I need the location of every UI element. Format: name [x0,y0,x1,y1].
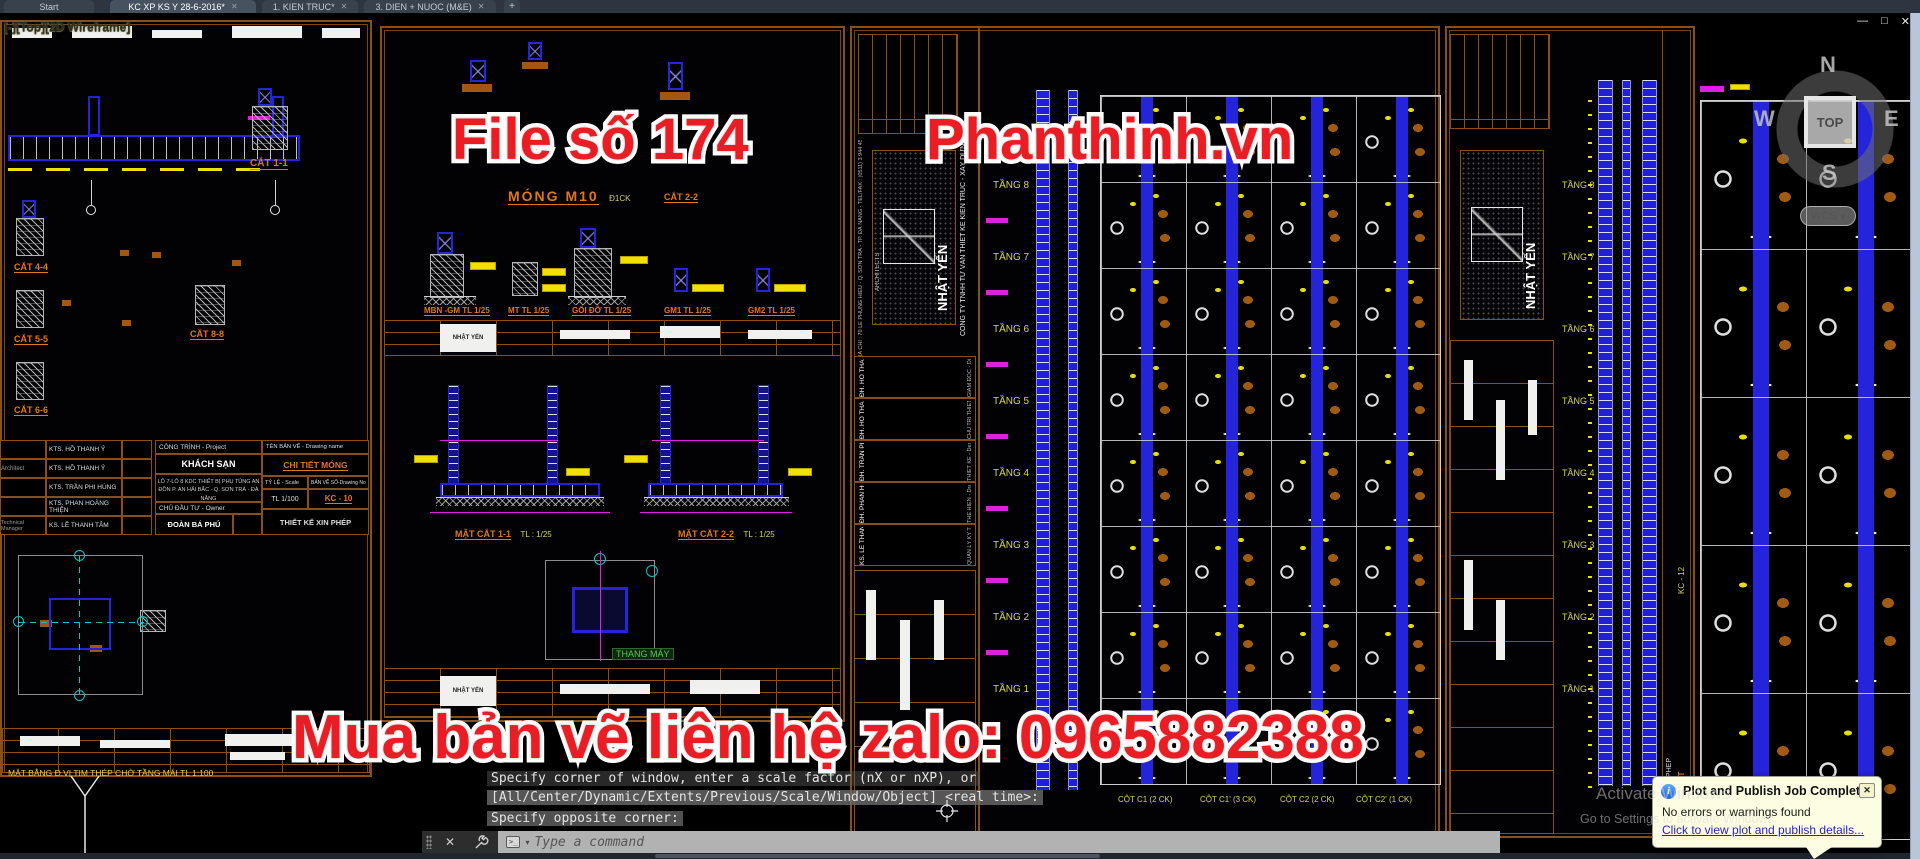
brick-detail [574,248,612,298]
role-row: QUẢN LÝ KỸ THUẬT - Technical Manager KS.… [854,524,976,566]
title-block: CÔNG TRÌNH - Project KHÁCH SẠN LÔ 7-LÔ 8… [155,440,369,535]
viewcube-top-face[interactable]: TOP [1804,96,1856,148]
dimension-line [652,440,764,441]
grid-bubble [74,690,85,701]
person-name: KTS. HỒ THANH Ỷ [46,459,122,478]
role-row: THỂ HIỆN - Drawn by ĐH. PHAN HOÀNG THIỆN [854,482,976,524]
wall-section [660,385,671,484]
viewport-controls-label[interactable]: [-][Top][2D Wireframe] [4,20,130,34]
column-elevation [1642,80,1657,786]
drawing-tab-bar: Start KC XP KS Y 28-6-2016* ✕ 1. KIEN TR… [0,0,1920,13]
wall-section [547,385,558,484]
drawing-info-strip: THIẾT KẾ XIN PHÉP CHI TIẾT CỘT KC - 12 [1662,30,1693,834]
detail-label: GỐI ĐỠ TL 1/25 [572,306,631,316]
person-name: KS. LÊ THANH TÂM [46,516,122,535]
chevron-down-icon: ▾ [1841,212,1845,221]
tab-drawing-kcxp[interactable]: KC XP KS Y 28-6-2016* ✕ [110,0,256,13]
center-mark-cursor [936,800,958,822]
tab-label: KC XP KS Y 28-6-2016* [128,2,225,12]
drawing-name-label: TÊN BẢN VẼ - Drawing name [262,440,369,454]
redacted-text-block [866,590,876,660]
column-type-label: CỘT C2 (2 CK) [1280,795,1335,804]
tab-close-icon[interactable]: ✕ [341,2,348,11]
vertical-scrollbar[interactable] [1910,13,1920,859]
floor-label: TẦNG 7 [993,252,1029,263]
chevron-down-icon[interactable]: ▾ [525,838,529,847]
grid-bubble [74,550,85,561]
highlight-bar [774,284,806,292]
plot-notification-balloon: i Plot and Publish Job Complete ✕ No err… [1652,776,1882,848]
plan-drawing [18,555,143,695]
hatch-chip [122,320,131,326]
signature-cell [122,497,152,516]
firm-stamp: NHẬT YẾN ARCHITECTS [872,150,956,325]
project-name: KHÁCH SẠN [155,454,262,474]
highlight-bar [566,468,590,476]
personnel-table: KTS. HỒ THANH Ỷ Architect KTS. HỒ THANH … [0,440,152,535]
command-close-button[interactable]: ✕ [436,831,464,853]
close-icon: ✕ [445,835,455,849]
drawing-name-text: CHI TIẾT MÓNG [283,460,347,471]
detail-label: CẮT 8-8 [190,329,224,340]
dimension-line [430,512,610,513]
brick-detail [16,218,44,256]
plan-inner-rect [49,598,111,650]
sheet-title-suffix: Đ1CK [609,194,630,203]
owner-label: CHỦ ĐẦU TƯ - Owner [155,502,262,514]
horizontal-scrollbar[interactable] [655,854,1100,858]
highlight-bar [692,284,724,292]
section-scale: TL : 1/25 [520,530,551,539]
column-x-section [668,62,683,90]
elevator-plan [545,560,655,660]
role-name: ĐH. PHAN HOÀNG THIỆN [859,485,866,523]
role-name: ĐH. HỒ THANH Ỷ [859,401,866,439]
tab-label: 3. DIEN + NUOC (M&E) [376,2,472,12]
redacted-text-block [230,752,285,760]
role-title: GIÁM ĐỐC - Director [967,359,973,397]
tab-drawing-diennuoc[interactable]: 3. DIEN + NUOC (M&E) ✕ [364,0,496,13]
hatch-chip [232,260,241,266]
firm-logo-box: NHẬT YẾN [440,324,496,352]
drawing-number-text: KC - 10 [325,494,353,504]
signature-cell [122,459,152,478]
column-x-section [470,60,486,82]
command-history-line: [All/Center/Dynamic/Extents/Previous/Sca… [487,790,1043,805]
brick-detail [195,285,225,325]
hatch-chip [522,62,548,69]
close-icon: ✕ [1863,785,1871,796]
redacted-text-block [560,330,630,339]
elevation-marker [986,362,1008,367]
centerline-horizontal [19,622,144,623]
drawing-number-vertical: KC - 12 [1677,474,1686,594]
revision-table [1450,34,1550,129]
stamp-name: NHẬT YẾN [935,171,950,311]
footing-slab [648,483,783,497]
detail-label: CẮT 2-2 [664,192,698,203]
grip-dots-icon [426,835,432,849]
grid-bubble [646,565,658,577]
role-row: GIÁM ĐỐC - Director ĐH. HỒ THANH Ỷ [854,356,976,398]
brick-detail [16,290,44,328]
column-x-section [674,268,688,292]
role-row: CHỦ TRÌ THIẾT KẾ - Principal Architect Đ… [854,398,976,440]
grid-bubble [137,616,148,627]
autocad-window: Start KC XP KS Y 28-6-2016* ✕ 1. KIEN TR… [0,0,1920,859]
brick-detail [430,254,464,298]
owner-name: ĐOÀN BÁ PHÚ [155,514,233,535]
elevation-marker [1700,86,1724,92]
footing-slab [440,483,600,497]
column-x-section [528,42,542,60]
grid-bubble [270,205,280,215]
watermark-contact: Mua bản vẽ liên hệ zalo: 0965882388 [292,702,1364,773]
redacted-text-block [560,684,650,694]
section-label: MẶT CẮT 2-2 TL : 1/25 [678,524,775,542]
column-x-section [580,228,596,248]
info-icon: i [1661,784,1676,799]
ground-hatch [568,296,626,305]
column-elevation [1036,90,1050,790]
column-x-section [22,200,36,218]
redacted-text-block [152,30,202,38]
dimension-ticks [1588,100,1592,790]
person-name: KTS. PHAN HOÀNG THIỆN [46,497,122,516]
ground-hatch [424,296,476,305]
elevation-marker [986,506,1008,511]
redacted-text-block [1496,600,1505,660]
company-name-vertical: CÔNG TY TNHH TƯ VẤN THIẾT KẾ KIẾN TRÚC -… [960,36,967,336]
role-title: QUẢN LÝ KỸ THUẬT - Technical Manager [967,527,973,565]
leader-line [55,768,125,858]
elevation-marker [986,650,1008,655]
column-elevation [1622,80,1631,786]
tab-start[interactable]: Start [4,0,94,13]
viewcube-north[interactable]: N [1820,52,1836,78]
viewcube-west[interactable]: W [1754,106,1775,132]
viewcube-south[interactable]: S [1822,160,1837,186]
redacted-text-block [660,326,720,338]
signature-cell [122,516,152,535]
role-label [0,478,46,497]
role-title: CHỦ TRÌ THIẾT KẾ - Principal Architect [967,401,973,439]
permit-label: THIẾT KẾ XIN PHÉP [262,509,369,535]
dimension-line [440,440,558,441]
wrench-icon [474,835,489,850]
redacted-text-block [748,330,812,339]
sheet-title-text: MÓNG M10 [508,188,599,205]
detail-label: CẮT 6-6 [14,405,48,416]
redacted-text-block [322,28,360,38]
person-name: KTS. HỒ THANH Ỷ [46,440,122,459]
drawing-number-label: BẢN VẼ SỐ-Drawing No [308,476,369,489]
redacted-text-block [20,736,80,746]
redacted-text-block [690,680,760,694]
scale-label: TỶ LỆ - Scale [262,476,308,489]
highlight-bar [470,262,496,270]
person-name: KTS. TRẦN PHI HÙNG [46,478,122,497]
redacted-text-block [900,620,910,710]
new-tab-button[interactable]: + [504,0,520,13]
column-x-section [258,88,272,106]
floor-label: TẦNG 2 [993,612,1029,623]
redacted-text-block [934,600,944,660]
floor-label: TẦNG 1 [993,684,1029,695]
detail-label: CẮT 5-5 [14,334,48,345]
detail-label: MT TL 1/25 [508,306,549,316]
hatch-chip [120,250,129,256]
stamp-logo-box [1471,207,1523,262]
column-type-label: CỘT C1 (2 CK) [1118,795,1173,804]
section-label-text: MẶT CẮT 1-1 [455,529,511,540]
wall-section [448,385,459,484]
stamp-name: NHẬT YẾN [1523,169,1538,309]
redacted-text-block [1528,380,1537,435]
notification-details-link[interactable]: Click to view plot and publish details..… [1662,823,1864,837]
highlight-bar [1730,84,1750,90]
stamp-logo-box [883,209,935,264]
highlight-bar [624,455,648,463]
viewcube: N W E S TOP WCS ▾ [1770,48,1900,238]
highlight-bar [788,468,812,476]
detail-label: GM1 TL 1/25 [664,306,711,316]
brick-detail [16,362,44,400]
stamp-subtitle: ARCHITECTS [875,191,881,291]
signature-cell [122,478,152,497]
column-stub-drawing [88,96,100,136]
hatch-chip [462,84,492,92]
wall-section [758,385,769,484]
elevation-marker [986,218,1008,223]
command-history-line: Specify corner of window, enter a scale … [487,771,980,786]
elevation-marker [986,434,1008,439]
balloon-tail [1806,847,1832,859]
tab-close-icon[interactable]: ✕ [478,2,485,11]
role-name: KS. LÊ THANH TÂM [859,527,866,565]
window-controls: — □ ✕ [1857,15,1910,28]
detail-label: GM2 TL 1/25 [748,306,795,316]
project-label: CÔNG TRÌNH - Project [155,440,262,454]
highlight-bar [414,455,438,463]
section-label: MẶT CẮT 1-1 TL : 1/25 [455,524,552,542]
hatch-chip [152,252,161,258]
command-customize-button[interactable] [464,831,498,853]
role-name: ĐH. HỒ THANH Ỷ [859,359,866,397]
signature-cell [233,514,262,535]
prompt-icon: >_ [506,836,520,848]
floor-label: TẦNG 5 [993,396,1029,407]
section-scale: TL : 1/25 [743,530,774,539]
column-elevation [1598,80,1613,786]
watermark-file-number: File số 174 [452,106,749,173]
column-x-section [756,268,770,292]
detail-label: CẮT 4-4 [14,262,48,273]
centerline-vertical [79,556,80,696]
notification-title: Plot and Publish Job Complete [1683,784,1867,798]
column-x-section [437,232,453,254]
wcs-menu[interactable]: WCS ▾ [1800,206,1856,226]
hatch-chip [660,92,690,100]
watermark-site-name: Phanthinh.vn [926,106,1293,173]
floor-label: TẦNG 3 [993,540,1029,551]
role-label [0,497,46,516]
rebar-callout-row [8,168,268,171]
sheet-title: MÓNG M10 Đ1CK [508,188,630,206]
grid-bubble [13,616,24,627]
command-bar[interactable]: ✕ >_ ▾ Type a command [422,831,1500,853]
floor-label: TẦNG 4 [993,468,1029,479]
redacted-text-block [1464,560,1473,630]
centerline [600,551,601,661]
command-input[interactable]: >_ ▾ Type a command [498,831,1500,853]
scale-value: TL 1/100 [262,489,308,509]
firm-stamp: NHẬT YẾN [1460,150,1544,320]
grid-bubble [86,205,96,215]
tab-drawing-kientruc[interactable]: 1. KIEN TRUC* ✕ [262,0,358,13]
drawing-name: CHI TIẾT MÓNG [262,454,369,476]
dimension-line [640,512,792,513]
notification-body: No errors or warnings found [1662,805,1811,819]
section-label-text: MẶT CẮT 2-2 [678,529,734,540]
command-bar-grip[interactable] [422,831,436,853]
tab-label: 1. KIEN TRUC* [273,2,335,12]
redacted-text-block [100,740,170,748]
brick-detail [512,262,538,296]
floor-label: TẦNG 8 [993,180,1029,191]
redacted-text-block [232,26,302,38]
tab-start-label: Start [39,2,58,12]
viewcube-east[interactable]: E [1884,106,1899,132]
hatch-chip [62,300,71,306]
detail-label: MBN -GM TL 1/25 [424,306,490,316]
drawing-number: KC - 10 [308,489,369,509]
role-label: Technical Manager [0,516,46,535]
highlight-bar [620,256,648,264]
column-type-label: CỘT C1' (3 CK) [1200,795,1256,804]
highlight-bar [542,284,566,292]
elevation-marker [986,290,1008,295]
wcs-label: WCS [1811,210,1837,222]
tab-close-icon[interactable]: ✕ [231,2,238,11]
highlight-bar [542,268,566,276]
role-title: THIẾT KẾ - Designed by [967,443,973,481]
signature-cell [122,440,152,459]
ground-hatch [436,497,604,506]
company-address-vertical: ĐỊA CHỈ : 70 LÊ PHỤNG HIỂU - Q. SƠN TRÀ … [858,140,864,360]
ground-hatch [644,497,789,506]
elevator-label: THANG MÁY [612,648,674,660]
redacted-text-block [1464,360,1473,420]
role-title: THỂ HIỆN - Drawn by [967,485,973,523]
column-elevation [1068,90,1078,790]
notification-close-button[interactable]: ✕ [1859,783,1875,798]
redacted-text-block [1496,400,1505,480]
plus-icon: + [509,1,515,12]
brick-detail [252,106,288,150]
role-row: THIẾT KẾ - Designed by ĐH. TRẦN PHI HÙNG [854,440,976,482]
role-label: Architect [0,459,46,478]
project-address: LÔ 7-LÔ 8 KDC THIẾT BỊ PHỤ TÙNG AN ĐỒN P… [155,474,262,502]
role-name: ĐH. TRẦN PHI HÙNG [859,443,866,481]
close-icon[interactable]: ✕ [1901,15,1910,28]
floor-label: TẦNG 6 [993,324,1029,335]
detail-label: CẮT 1-1 [250,158,288,170]
column-detail-grid [1100,95,1441,785]
command-history-line: Specify opposite corner: [487,811,683,826]
minimize-icon[interactable]: — [1857,15,1868,28]
restore-icon[interactable]: □ [1881,15,1888,28]
elevation-marker [986,578,1008,583]
command-placeholder: Type a command [534,835,644,850]
firm-roles-block: GIÁM ĐỐC - Director ĐH. HỒ THANH Ỷ CHỦ T… [854,356,976,566]
column-type-label: CỘT C2' (1 CK) [1356,795,1412,804]
